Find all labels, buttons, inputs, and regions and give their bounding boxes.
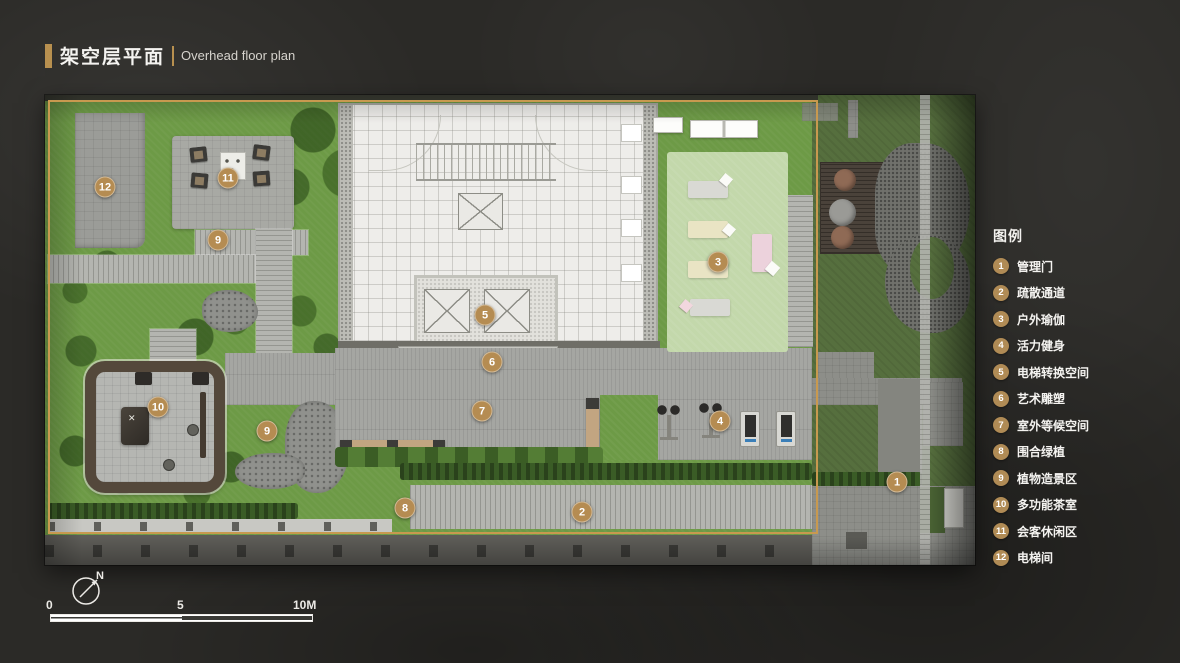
legend-item: 7室外等候空间 bbox=[993, 417, 1133, 433]
legend-item: 11会客休闲区 bbox=[993, 523, 1133, 539]
legend-number-badge: 6 bbox=[993, 391, 1009, 407]
legend-number-badge: 3 bbox=[993, 311, 1009, 327]
plan-marker-1: 1 bbox=[887, 472, 908, 493]
scale-bar-segment bbox=[51, 615, 182, 621]
plan-marker-8: 8 bbox=[395, 498, 416, 519]
title-divider bbox=[172, 46, 174, 66]
plan-marker-5: 5 bbox=[475, 305, 496, 326]
legend-item: 8围合绿植 bbox=[993, 444, 1133, 460]
scale-bar bbox=[50, 614, 313, 622]
plan-marker-10: 10 bbox=[148, 397, 169, 418]
legend-number-badge: 12 bbox=[993, 550, 1009, 566]
legend-number-badge: 4 bbox=[993, 338, 1009, 354]
plan-marker-11: 11 bbox=[218, 168, 239, 189]
legend-item: 2疏散通道 bbox=[993, 285, 1133, 301]
legend-item: 3户外瑜伽 bbox=[993, 311, 1133, 327]
slide-background: 架空层平面 Overhead floor plan bbox=[0, 0, 1180, 663]
gravel-lawn-hole bbox=[910, 237, 954, 299]
legend-label: 电梯转换空间 bbox=[1017, 364, 1089, 381]
outside-path bbox=[848, 100, 858, 138]
pavilion-pad bbox=[945, 489, 963, 527]
legend-label: 植物造景区 bbox=[1017, 470, 1077, 487]
plan-marker-7: 7 bbox=[472, 401, 493, 422]
legend-item: 10多功能茶室 bbox=[993, 497, 1133, 513]
legend-item: 12电梯间 bbox=[993, 550, 1133, 566]
plan-marker-6: 6 bbox=[482, 352, 503, 373]
legend-label: 户外瑜伽 bbox=[1017, 311, 1065, 328]
legend-label: 围合绿植 bbox=[1017, 443, 1065, 460]
tree-icon bbox=[829, 199, 856, 226]
floor-plan: 12 11 9 9 10 5 6 7 8 2 3 4 1 bbox=[45, 95, 975, 565]
scale-tick-10: 10M bbox=[293, 598, 316, 612]
legend-label: 疏散通道 bbox=[1017, 284, 1065, 301]
legend-heading: 图例 bbox=[993, 226, 1133, 246]
outside-block bbox=[846, 532, 867, 549]
title-accent-bar bbox=[45, 44, 52, 68]
legend-number-badge: 5 bbox=[993, 364, 1009, 380]
legend-label: 电梯间 bbox=[1017, 549, 1053, 566]
legend: 图例 1管理门 2疏散通道 3户外瑜伽 4活力健身 5电梯转换空间 6艺术雕塑 … bbox=[993, 226, 1133, 576]
outside-path bbox=[818, 352, 874, 380]
legend-item: 5电梯转换空间 bbox=[993, 364, 1133, 380]
plan-marker-9: 9 bbox=[257, 421, 278, 442]
scale-bar-segment bbox=[182, 615, 313, 621]
legend-item: 1管理门 bbox=[993, 258, 1133, 274]
scale-tick-0: 0 bbox=[46, 598, 53, 612]
plan-marker-3: 3 bbox=[708, 252, 729, 273]
legend-number-badge: 11 bbox=[993, 523, 1009, 539]
tree-icon bbox=[831, 226, 854, 249]
plan-marker-4: 4 bbox=[710, 411, 731, 432]
outside-concrete-strip bbox=[45, 535, 815, 565]
legend-label: 多功能茶室 bbox=[1017, 496, 1077, 513]
legend-number-badge: 10 bbox=[993, 497, 1009, 513]
legend-number-badge: 1 bbox=[993, 258, 1009, 274]
scale-tick-5: 5 bbox=[177, 598, 184, 612]
legend-item: 6艺术雕塑 bbox=[993, 391, 1133, 407]
legend-item: 4活力健身 bbox=[993, 338, 1133, 354]
outside-walk-path bbox=[920, 95, 930, 565]
legend-label: 艺术雕塑 bbox=[1017, 390, 1065, 407]
legend-item: 9植物造景区 bbox=[993, 470, 1133, 486]
legend-label: 会客休闲区 bbox=[1017, 523, 1077, 540]
plan-marker-12: 12 bbox=[95, 177, 116, 198]
page-title-zh: 架空层平面 bbox=[60, 42, 165, 69]
page-title-en: Overhead floor plan bbox=[181, 48, 295, 63]
legend-number-badge: 8 bbox=[993, 444, 1009, 460]
legend-number-badge: 2 bbox=[993, 285, 1009, 301]
plan-marker-2: 2 bbox=[572, 502, 593, 523]
legend-label: 活力健身 bbox=[1017, 337, 1065, 354]
legend-number-badge: 9 bbox=[993, 470, 1009, 486]
property-boundary bbox=[48, 100, 818, 534]
north-label: N bbox=[96, 570, 104, 582]
tree-icon bbox=[834, 169, 856, 191]
legend-label: 管理门 bbox=[1017, 258, 1053, 275]
legend-label: 室外等候空间 bbox=[1017, 417, 1089, 434]
legend-number-badge: 7 bbox=[993, 417, 1009, 433]
plan-marker-9: 9 bbox=[208, 230, 229, 251]
